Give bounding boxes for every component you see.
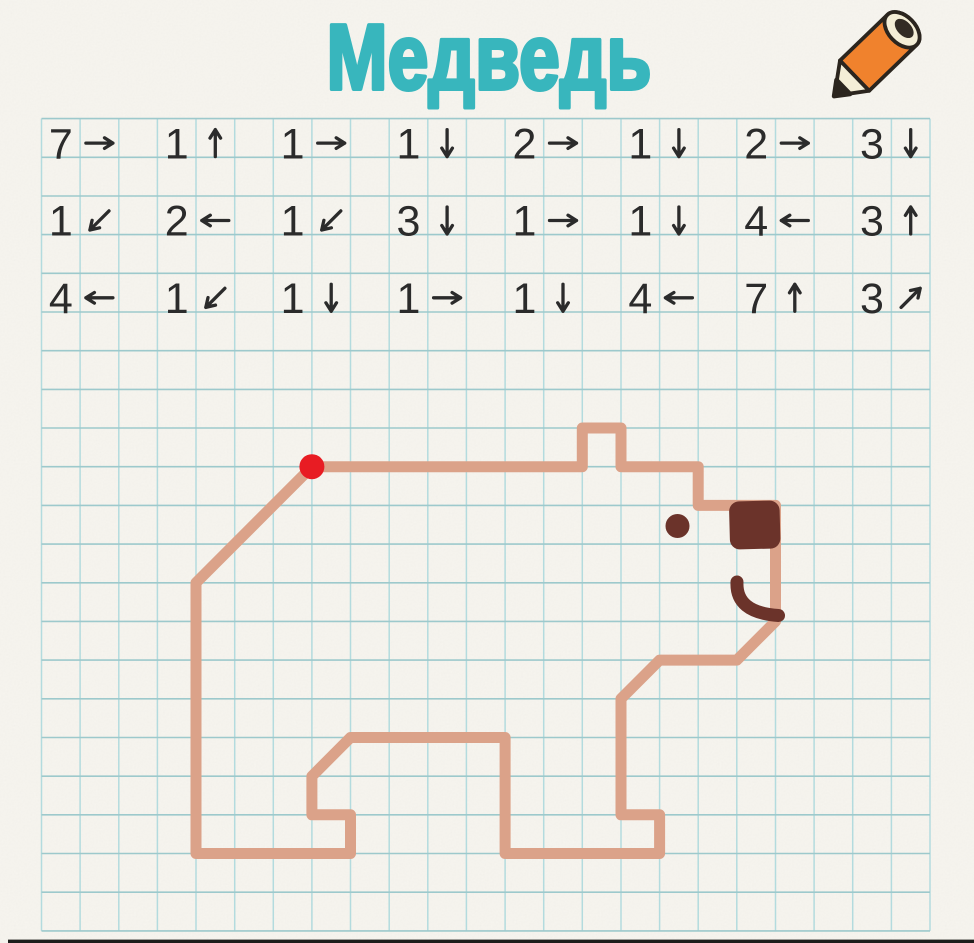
svg-text:2: 2 <box>512 120 536 168</box>
svg-text:1: 1 <box>512 198 536 246</box>
svg-text:1: 1 <box>397 120 421 168</box>
svg-text:1: 1 <box>49 198 73 246</box>
svg-text:1: 1 <box>281 198 305 246</box>
svg-text:3: 3 <box>860 120 884 168</box>
svg-text:1: 1 <box>512 275 536 323</box>
svg-text:7: 7 <box>49 120 73 168</box>
svg-text:3: 3 <box>860 275 884 323</box>
svg-text:1: 1 <box>281 120 305 168</box>
svg-text:2: 2 <box>744 120 768 168</box>
svg-text:1: 1 <box>628 198 652 246</box>
svg-text:7: 7 <box>744 275 768 323</box>
svg-text:1: 1 <box>397 275 421 323</box>
svg-text:1: 1 <box>628 120 652 168</box>
svg-text:1: 1 <box>165 275 189 323</box>
svg-text:4: 4 <box>49 275 73 323</box>
svg-text:4: 4 <box>628 275 652 323</box>
svg-text:1: 1 <box>281 275 305 323</box>
svg-text:1: 1 <box>165 120 189 168</box>
svg-text:3: 3 <box>397 198 421 246</box>
svg-text:4: 4 <box>744 198 768 246</box>
svg-text:3: 3 <box>860 198 884 246</box>
svg-text:Медведь: Медведь <box>327 5 652 109</box>
svg-text:2: 2 <box>165 198 189 246</box>
